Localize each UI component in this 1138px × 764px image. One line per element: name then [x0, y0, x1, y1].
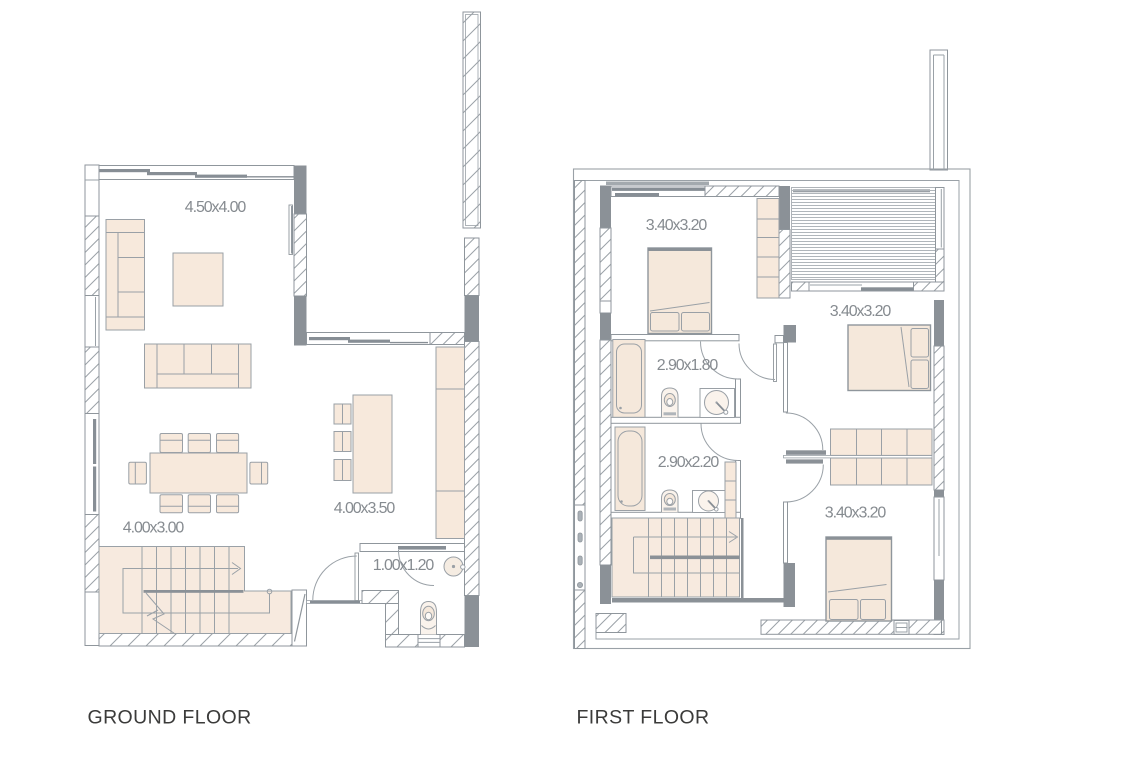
svg-text:4.00x3.00: 4.00x3.00	[123, 520, 185, 537]
svg-text:2.90x1.80: 2.90x1.80	[657, 357, 719, 374]
svg-text:4.50x4.00: 4.50x4.00	[185, 199, 247, 216]
svg-text:3.40x3.20: 3.40x3.20	[830, 303, 892, 320]
svg-text:FIRST FLOOR: FIRST FLOOR	[577, 707, 710, 729]
svg-text:4.00x3.50: 4.00x3.50	[334, 500, 396, 517]
svg-text:2.90x2.20: 2.90x2.20	[658, 454, 720, 471]
svg-text:1.00x1.20: 1.00x1.20	[373, 557, 435, 574]
svg-text:3.40x3.20: 3.40x3.20	[646, 217, 708, 234]
svg-text:3.40x3.20: 3.40x3.20	[825, 505, 887, 522]
svg-text:GROUND FLOOR: GROUND FLOOR	[88, 707, 252, 729]
